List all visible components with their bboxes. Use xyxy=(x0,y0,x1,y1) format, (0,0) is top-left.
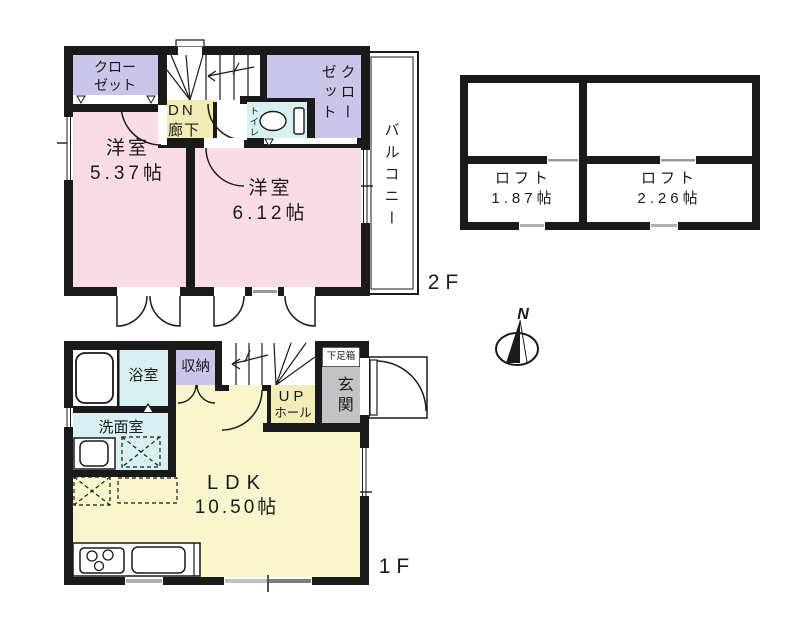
ldk-label: LDK 10.50帖 xyxy=(172,470,302,521)
closet-right-label: クローゼット xyxy=(318,62,356,126)
loft-left-size: 1.87帖 xyxy=(468,189,579,209)
hall-label: ホール xyxy=(268,405,318,421)
bathtub xyxy=(76,353,113,403)
compass-north-label: N xyxy=(511,305,535,326)
bedroom1-size: 5.37帖 xyxy=(73,162,183,187)
washroom-label: 洗面室 xyxy=(76,418,166,438)
loft-right-label: ロフト 2.26帖 xyxy=(587,169,752,208)
dn-text: DN xyxy=(168,101,214,121)
entry-porch xyxy=(369,357,427,418)
compass-needle xyxy=(506,320,520,363)
balcony-label: バルコニー xyxy=(381,93,401,261)
floor-plan-canvas: クローゼット DN 廊下 トイレ クローゼット バルコニー 洋室 5.37帖 洋… xyxy=(0,0,800,622)
up-label: UP xyxy=(272,387,314,407)
loft-left-name: ロフト xyxy=(468,169,579,189)
bedroom2-size: 6.12帖 xyxy=(198,202,343,227)
floor1-label: 1F xyxy=(371,553,423,580)
bedroom2-label: 洋室 6.12帖 xyxy=(198,177,343,226)
corridor-dn-label: DN 廊下 xyxy=(168,101,214,140)
ldk-size: 10.50帖 xyxy=(172,496,302,521)
loft-left-label: ロフト 1.87帖 xyxy=(468,169,579,208)
ldk-name: LDK xyxy=(172,470,302,496)
floor2-label: 2F xyxy=(420,269,472,296)
entrance-label: 玄関 xyxy=(332,374,353,418)
floor2-bottom-doors xyxy=(117,287,315,326)
bathroom-label: 浴室 xyxy=(119,366,168,386)
storage-label: 収納 xyxy=(176,358,215,377)
compass xyxy=(496,320,538,365)
loft-right-name: ロフト xyxy=(587,169,752,189)
loft-right-size: 2.26帖 xyxy=(587,189,752,209)
shoe-box-label: 下足箱 xyxy=(322,351,360,363)
bedroom1-name: 洋室 xyxy=(73,137,183,162)
closet-left-label: クローゼット xyxy=(91,58,139,94)
bedroom2-name: 洋室 xyxy=(198,177,343,202)
kitchen-counter xyxy=(73,543,200,576)
sink xyxy=(132,547,185,573)
bedroom1-label: 洋室 5.37帖 xyxy=(73,137,183,186)
toilet-label: トイレ xyxy=(246,104,258,140)
